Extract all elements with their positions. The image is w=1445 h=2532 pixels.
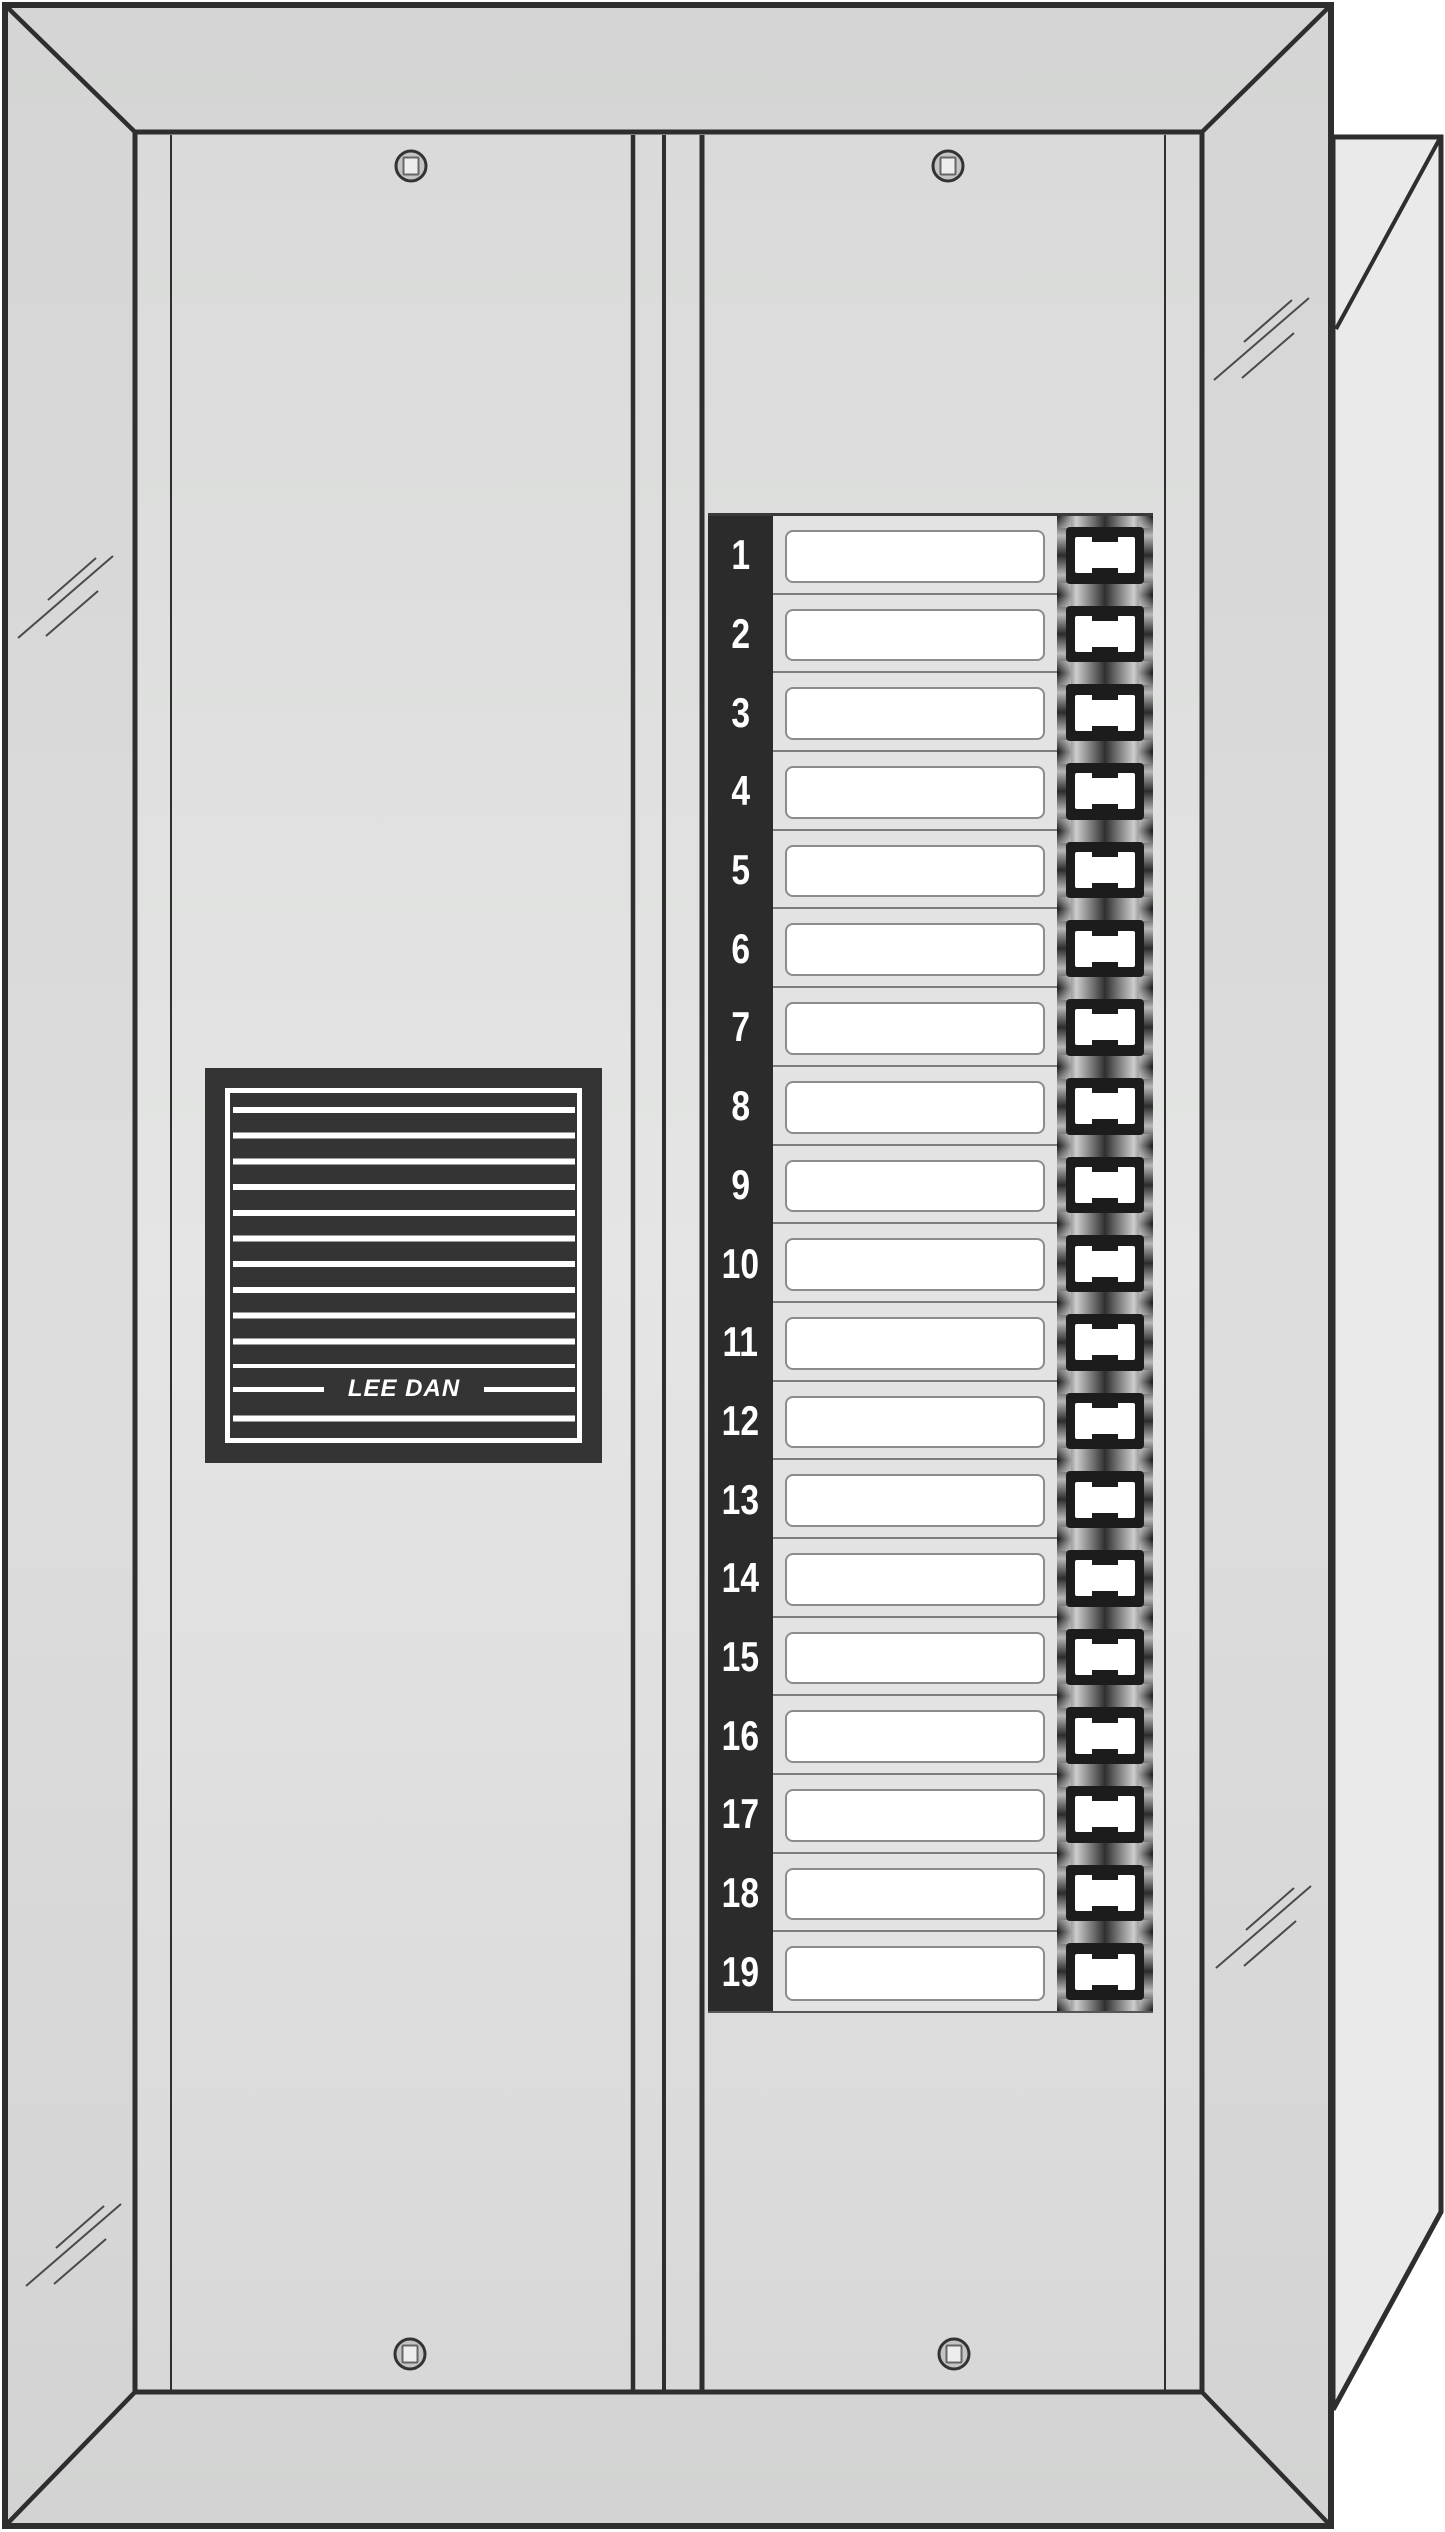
name-card-slot xyxy=(785,1396,1045,1449)
call-button-frame xyxy=(1066,1157,1144,1214)
call-button-cell xyxy=(1057,1067,1153,1146)
unit-number-label: 2 xyxy=(708,595,773,674)
unit-number-label: 7 xyxy=(708,988,773,1067)
call-button[interactable] xyxy=(1075,1324,1135,1360)
call-button-frame xyxy=(1066,1943,1144,2000)
name-card-slot xyxy=(785,1160,1045,1213)
call-button-cell xyxy=(1057,595,1153,674)
name-card-cell xyxy=(773,1067,1057,1146)
name-card-slot xyxy=(785,845,1045,898)
unit-number-label: 1 xyxy=(708,516,773,595)
name-card-cell xyxy=(773,752,1057,831)
call-button-cell xyxy=(1057,1932,1153,2011)
directory-row: 1 xyxy=(708,516,1153,595)
call-button[interactable] xyxy=(1075,1560,1135,1596)
brand-band: LEE DAN xyxy=(233,1368,575,1410)
brand-rule-right xyxy=(484,1387,575,1392)
unit-number-label: 11 xyxy=(708,1303,773,1382)
call-button-cell xyxy=(1057,1854,1153,1933)
call-button-frame xyxy=(1066,1865,1144,1922)
call-button-frame xyxy=(1066,842,1144,899)
call-button-cell xyxy=(1057,831,1153,910)
name-card-cell xyxy=(773,1932,1057,2011)
unit-number-label: 16 xyxy=(708,1696,773,1775)
call-button-frame xyxy=(1066,1629,1144,1686)
directory-row: 19 xyxy=(708,1932,1153,2011)
call-button-frame xyxy=(1066,1314,1144,1371)
name-card-cell xyxy=(773,595,1057,674)
screw-icon xyxy=(396,151,426,181)
directory-row: 14 xyxy=(708,1539,1153,1618)
call-button-cell xyxy=(1057,1303,1153,1382)
call-button-cell xyxy=(1057,988,1153,1067)
name-card-slot xyxy=(785,1868,1045,1921)
call-button-cell xyxy=(1057,1539,1153,1618)
name-card-slot xyxy=(785,1789,1045,1842)
name-card-slot xyxy=(785,1553,1045,1606)
name-card-slot xyxy=(785,1710,1045,1763)
directory-row: 12 xyxy=(708,1382,1153,1461)
call-button-frame xyxy=(1066,1471,1144,1528)
name-card-cell xyxy=(773,1618,1057,1697)
call-button-cell xyxy=(1057,673,1153,752)
call-button-frame xyxy=(1066,1550,1144,1607)
unit-number-label: 3 xyxy=(708,673,773,752)
name-card-cell xyxy=(773,1303,1057,1382)
brand-label: LEE DAN xyxy=(348,1377,460,1401)
directory-assembly: 12345678910111213141516171819 xyxy=(708,513,1153,2013)
call-button-cell xyxy=(1057,1460,1153,1539)
directory-row: 13 xyxy=(708,1460,1153,1539)
name-card-slot xyxy=(785,530,1045,583)
call-button-cell xyxy=(1057,1618,1153,1697)
name-card-slot xyxy=(785,1002,1045,1055)
intercom-panel: LEE DAN 12345678910111213141516171819 xyxy=(0,0,1445,2532)
directory-row: 5 xyxy=(708,831,1153,910)
call-button[interactable] xyxy=(1075,773,1135,809)
directory-row: 10 xyxy=(708,1224,1153,1303)
name-card-cell xyxy=(773,1539,1057,1618)
call-button[interactable] xyxy=(1075,537,1135,573)
name-card-cell xyxy=(773,988,1057,1067)
name-card-cell xyxy=(773,673,1057,752)
unit-number-label: 12 xyxy=(708,1382,773,1461)
call-button-frame xyxy=(1066,1393,1144,1450)
name-card-slot xyxy=(785,687,1045,740)
back-box-flange xyxy=(1333,137,1441,2408)
unit-number-label: 10 xyxy=(708,1224,773,1303)
call-button[interactable] xyxy=(1075,1482,1135,1518)
call-button[interactable] xyxy=(1075,1639,1135,1675)
call-button[interactable] xyxy=(1075,1246,1135,1282)
unit-number-label: 17 xyxy=(708,1775,773,1854)
screw-icon xyxy=(939,2339,969,2369)
call-button-frame xyxy=(1066,606,1144,663)
unit-number-label: 14 xyxy=(708,1539,773,1618)
name-card-slot xyxy=(785,1474,1045,1527)
call-button-cell xyxy=(1057,1146,1153,1225)
call-button[interactable] xyxy=(1075,1088,1135,1124)
unit-number-label: 13 xyxy=(708,1460,773,1539)
unit-number-label: 19 xyxy=(708,1932,773,2011)
name-card-slot xyxy=(785,1081,1045,1134)
name-card-cell xyxy=(773,1146,1057,1225)
unit-number-label: 18 xyxy=(708,1854,773,1933)
brand-rule-left xyxy=(233,1387,324,1392)
call-button[interactable] xyxy=(1075,1875,1135,1911)
directory-row: 9 xyxy=(708,1146,1153,1225)
directory-row: 16 xyxy=(708,1696,1153,1775)
unit-number-label: 15 xyxy=(708,1618,773,1697)
name-card-slot xyxy=(785,1317,1045,1370)
name-card-slot xyxy=(785,923,1045,976)
directory-row: 15 xyxy=(708,1618,1153,1697)
name-card-cell xyxy=(773,1460,1057,1539)
call-button[interactable] xyxy=(1075,1167,1135,1203)
call-button-frame xyxy=(1066,763,1144,820)
call-button-frame xyxy=(1066,1707,1144,1764)
speaker-grille-slats: LEE DAN xyxy=(233,1093,575,1437)
call-button[interactable] xyxy=(1075,1009,1135,1045)
directory-row: 3 xyxy=(708,673,1153,752)
call-button[interactable] xyxy=(1075,1403,1135,1439)
unit-number-label: 9 xyxy=(708,1146,773,1225)
name-card-cell xyxy=(773,909,1057,988)
call-button-cell xyxy=(1057,909,1153,988)
name-card-cell xyxy=(773,516,1057,595)
directory-row: 8 xyxy=(708,1067,1153,1146)
call-button-frame xyxy=(1066,999,1144,1056)
unit-number-label: 6 xyxy=(708,909,773,988)
call-button-cell xyxy=(1057,752,1153,831)
name-card-cell xyxy=(773,1224,1057,1303)
call-button-frame xyxy=(1066,684,1144,741)
name-card-slot xyxy=(785,1238,1045,1291)
screw-icon xyxy=(933,151,963,181)
call-button[interactable] xyxy=(1075,695,1135,731)
directory-row: 2 xyxy=(708,595,1153,674)
directory-row: 6 xyxy=(708,909,1153,988)
call-button-frame xyxy=(1066,527,1144,584)
name-card-slot xyxy=(785,1946,1045,2001)
directory-row: 4 xyxy=(708,752,1153,831)
call-button[interactable] xyxy=(1075,1718,1135,1754)
call-button-cell xyxy=(1057,516,1153,595)
call-button[interactable] xyxy=(1075,1796,1135,1832)
call-button-frame xyxy=(1066,1786,1144,1843)
unit-number-label: 4 xyxy=(708,752,773,831)
name-card-cell xyxy=(773,1775,1057,1854)
unit-number-label: 8 xyxy=(708,1067,773,1146)
screw-icon xyxy=(395,2339,425,2369)
call-button-cell xyxy=(1057,1775,1153,1854)
call-button-cell xyxy=(1057,1224,1153,1303)
name-card-slot xyxy=(785,1632,1045,1685)
call-button[interactable] xyxy=(1075,616,1135,652)
directory-row: 11 xyxy=(708,1303,1153,1382)
call-button[interactable] xyxy=(1075,931,1135,967)
name-card-cell xyxy=(773,1696,1057,1775)
name-card-cell xyxy=(773,831,1057,910)
call-button-cell xyxy=(1057,1696,1153,1775)
call-button-frame xyxy=(1066,1235,1144,1292)
name-card-slot xyxy=(785,609,1045,662)
call-button[interactable] xyxy=(1075,852,1135,888)
name-card-slot xyxy=(785,766,1045,819)
call-button-frame xyxy=(1066,1078,1144,1135)
speaker-grille: LEE DAN xyxy=(205,1068,602,1463)
name-card-cell xyxy=(773,1382,1057,1461)
directory-row: 7 xyxy=(708,988,1153,1067)
call-button[interactable] xyxy=(1075,1954,1135,1990)
unit-number-label: 5 xyxy=(708,831,773,910)
directory-row: 18 xyxy=(708,1854,1153,1933)
name-card-cell xyxy=(773,1854,1057,1933)
directory-row: 17 xyxy=(708,1775,1153,1854)
call-button-cell xyxy=(1057,1382,1153,1461)
call-button-frame xyxy=(1066,920,1144,977)
